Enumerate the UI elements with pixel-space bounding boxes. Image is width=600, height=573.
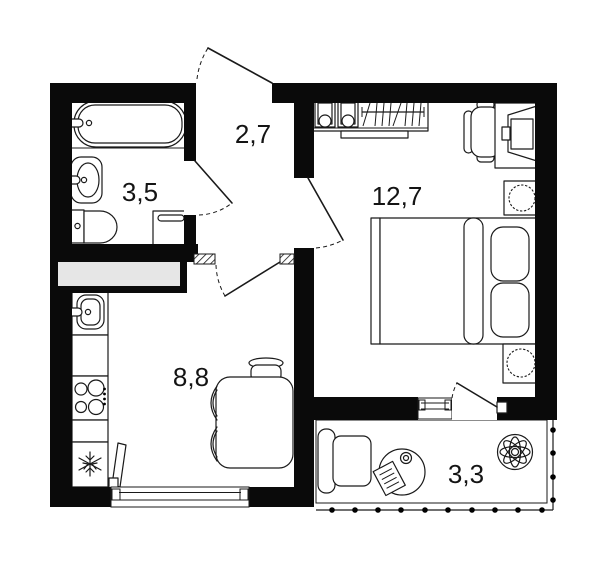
kitchen-window — [111, 487, 249, 507]
bedroom-door-swing — [308, 178, 343, 248]
pillow-icon — [491, 283, 529, 337]
wall-kitchen-bedroom — [294, 248, 314, 507]
armchair-icon — [318, 429, 371, 493]
room-area-label-bedroom: 12,7 — [372, 181, 423, 211]
ventilation-shaft — [50, 256, 187, 293]
round-table-icon — [373, 449, 425, 496]
pillow-icon — [491, 227, 529, 281]
leaning-sash-icon — [109, 443, 126, 488]
toilet-icon — [71, 210, 117, 243]
room-area-label-hallway: 2,7 — [235, 119, 271, 149]
door-jamb — [194, 254, 215, 264]
wall-top-right — [272, 83, 557, 103]
floor-plan-svg: 2,7 3,5 12,7 8,8 3,3 — [0, 0, 600, 573]
bathtub-icon — [64, 101, 186, 147]
balcony-window — [418, 397, 452, 420]
room-area-label-balcony: 3,3 — [448, 459, 484, 489]
nightstand-lamp-icon — [503, 344, 540, 383]
wall-hall-bedroom — [294, 83, 314, 178]
door-jamb — [280, 254, 294, 264]
double-bed-icon — [371, 218, 536, 344]
room-area-label-bathroom: 3,5 — [122, 177, 158, 207]
bathroom-door-swing — [184, 161, 232, 215]
floor-plan: 2,7 3,5 12,7 8,8 3,3 — [0, 0, 600, 573]
dining-table-icon — [216, 377, 293, 468]
wall-left — [50, 83, 72, 507]
kitchen-door-swing — [194, 254, 294, 296]
entrance-door-swing — [196, 48, 272, 103]
plant-icon — [498, 435, 533, 470]
cup-icon — [401, 453, 412, 464]
nightstand-lamp-icon — [504, 181, 540, 215]
room-area-label-kitchen: 8,8 — [173, 362, 209, 392]
wall-right — [535, 83, 557, 420]
wall-top-left — [50, 83, 196, 103]
wall-bathroom-right-upper — [184, 83, 196, 161]
